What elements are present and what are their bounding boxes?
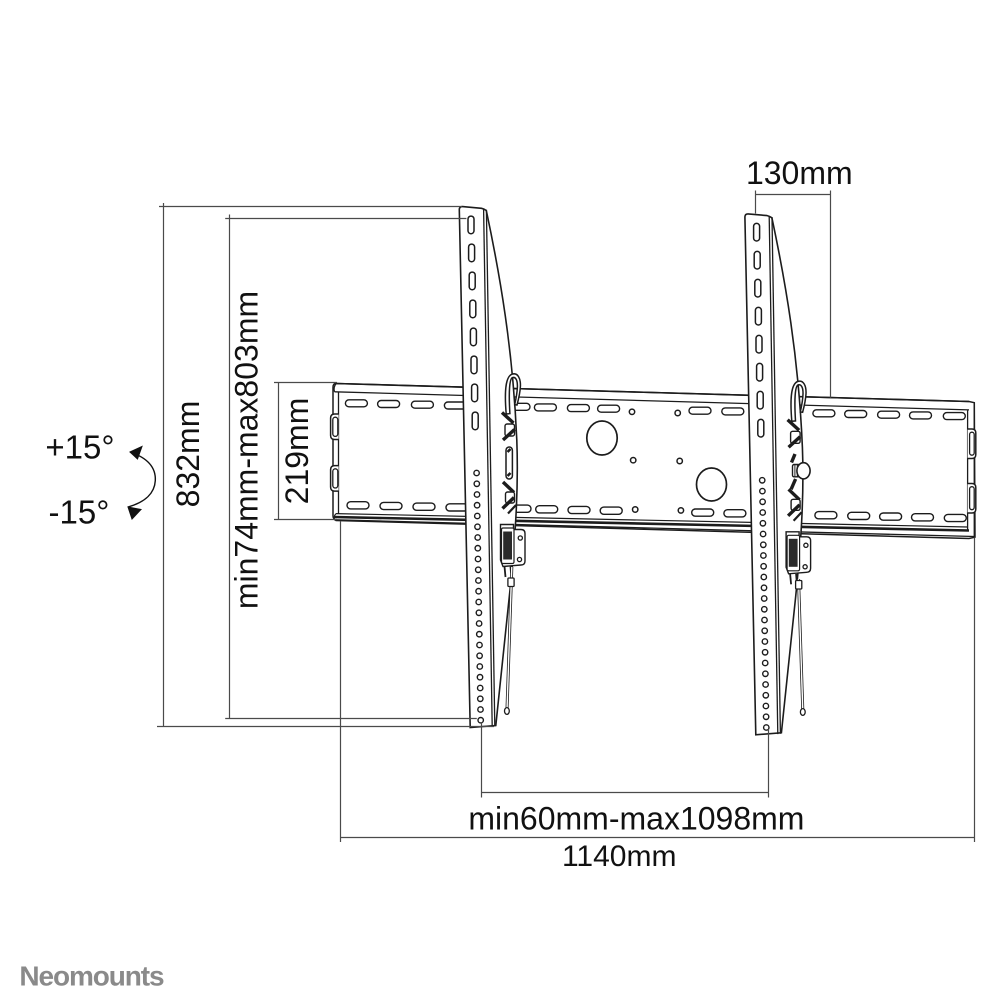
svg-text:+15°: +15°	[45, 428, 114, 465]
svg-text:min74mm-max803mm: min74mm-max803mm	[229, 291, 265, 609]
svg-text:Neomounts: Neomounts	[19, 961, 164, 992]
svg-text:219mm: 219mm	[279, 398, 315, 505]
svg-text:1140mm: 1140mm	[562, 840, 677, 873]
svg-text:130mm: 130mm	[746, 155, 853, 191]
svg-text:-15°: -15°	[49, 494, 110, 531]
svg-text:832mm: 832mm	[170, 401, 206, 508]
svg-text:min60mm-max1098mm: min60mm-max1098mm	[468, 800, 804, 836]
